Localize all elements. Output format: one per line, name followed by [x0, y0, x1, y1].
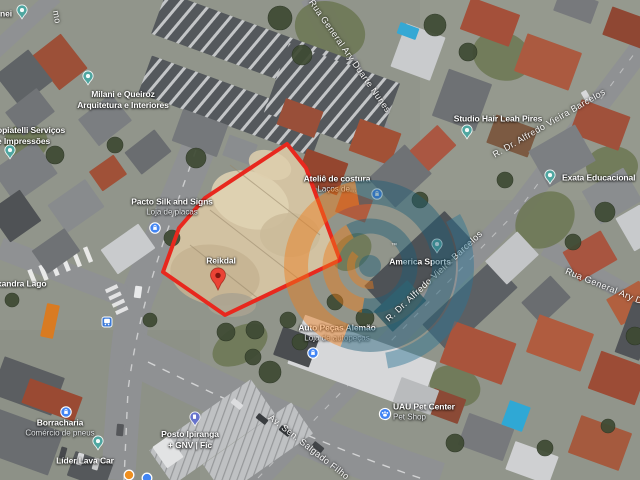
place-label-studio-hair[interactable]: Studio Hair Leah Pires — [454, 114, 543, 125]
place-label-lider-lava-car[interactable]: Líder Lava Car — [56, 456, 114, 467]
studio-hair-pin-icon[interactable] — [461, 124, 473, 140]
place-label-atelie-costura[interactable]: Ateliê de costuraLaços de... — [304, 174, 371, 195]
atelie-shop-pin-icon[interactable] — [371, 188, 383, 200]
orange-dot-pin-icon[interactable] — [123, 469, 135, 480]
place-label-exata-educacional[interactable]: Exata Educacional — [562, 173, 635, 184]
place-label-auto-pecas-alemao[interactable]: Auto Peças AlemãoLoja de autopeças — [298, 323, 375, 344]
place-label-partial-poi[interactable]: nei — [0, 9, 12, 20]
place-label-uau-pet-center[interactable]: UAU Pet CenterPet Shop — [393, 402, 455, 423]
left-edge-poi-pin-icon[interactable] — [4, 144, 16, 160]
satellite-map[interactable]: ™ Rua General Ary Duarte NunesR. Dr. Alf… — [0, 0, 640, 480]
lava-car-pin-icon[interactable] — [92, 435, 104, 451]
bus-stop-icon-icon[interactable] — [102, 317, 113, 328]
uau-pet-pin-icon[interactable] — [379, 408, 392, 421]
reikdal-destination-pin-icon[interactable] — [210, 267, 227, 291]
exata-pin-icon[interactable] — [544, 169, 556, 185]
borracharia-pin-icon[interactable] — [60, 406, 72, 418]
place-label-america-sports[interactable]: America Sports — [389, 257, 450, 268]
pacto-shop-pin-icon[interactable] — [149, 222, 161, 234]
america-sports-pin-icon[interactable] — [431, 238, 443, 254]
place-label-reikdal[interactable]: Reikdal — [206, 256, 236, 267]
posto-fuel-pin-icon[interactable] — [189, 411, 201, 427]
place-label-pacto-silk[interactable]: Pacto Silk and SignsLoja de placas — [131, 197, 213, 218]
blue-dot-pin-icon[interactable] — [141, 472, 153, 480]
milani-pin-icon[interactable] — [82, 70, 94, 86]
place-label-posto-ipiranga[interactable]: Posto Ipiranga+ GNV | Fic — [161, 429, 219, 451]
satellite-imagery — [0, 0, 640, 480]
trademark-symbol: ™ — [391, 243, 397, 249]
place-label-xandra-lago[interactable]: xandra Lago — [0, 279, 46, 290]
corner-poi-pin-icon[interactable] — [16, 4, 28, 20]
place-label-milani-queiroz[interactable]: Milani e QueirozArquitetura e Interiores — [77, 89, 169, 111]
auto-pecas-pin-icon[interactable] — [307, 347, 319, 359]
place-label-borracharia[interactable]: BorrachariaComércio de pneus — [25, 418, 94, 439]
street-label: mo — [51, 10, 63, 25]
